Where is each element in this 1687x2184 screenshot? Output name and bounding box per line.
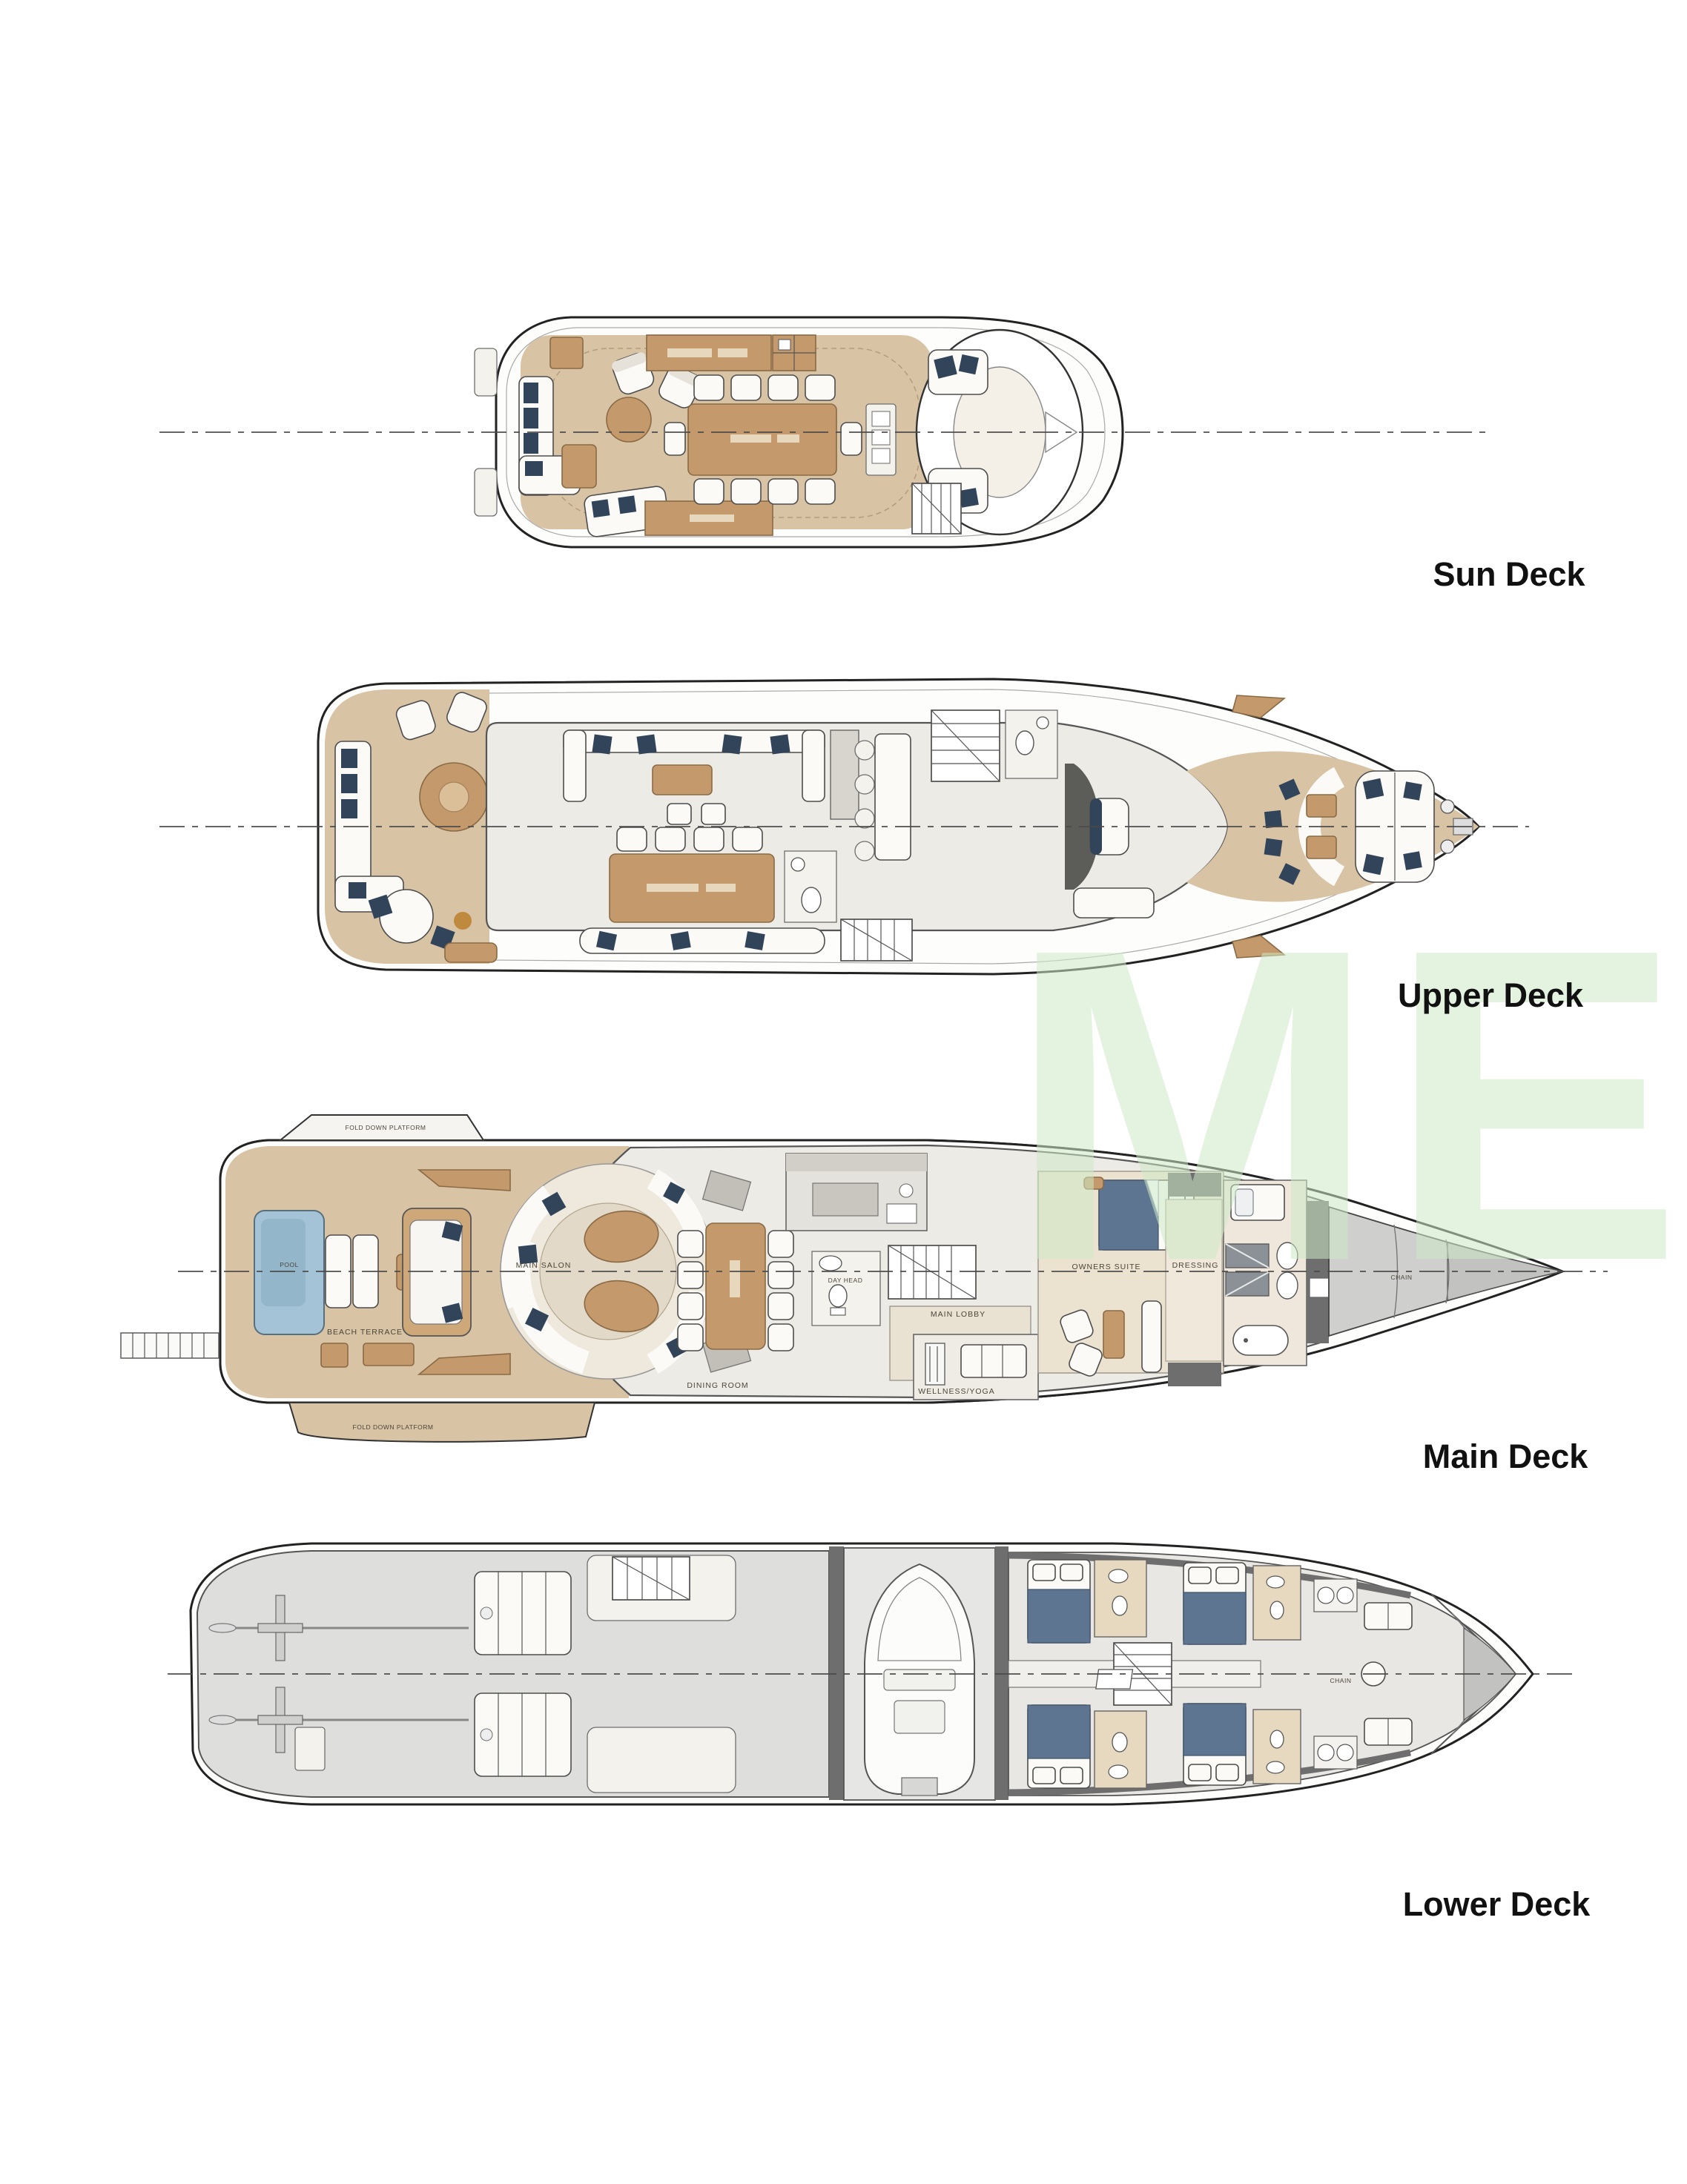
side-table bbox=[562, 445, 596, 488]
guest-cabin-bed bbox=[1028, 1705, 1090, 1788]
stbd-wing bbox=[475, 469, 497, 516]
chain-box bbox=[1096, 1670, 1133, 1689]
label-beach-terrace: BEACH TERRACE bbox=[327, 1328, 403, 1337]
port-wing bbox=[475, 348, 497, 396]
sun-deck-stairs bbox=[912, 483, 961, 534]
yacht-deck-plans-page: ME POOL BEACH TERRACE MAIN SALON DINING … bbox=[0, 0, 1687, 2184]
label-chain-main: CHAIN bbox=[1391, 1274, 1413, 1281]
galley bbox=[786, 1154, 927, 1231]
title-main-deck: Main Deck bbox=[1423, 1437, 1589, 1475]
day-head bbox=[812, 1251, 880, 1326]
label-dining-room: DINING ROOM bbox=[687, 1381, 748, 1390]
wardrobe bbox=[1168, 1363, 1221, 1386]
cabin-bathroom bbox=[1095, 1711, 1146, 1788]
label-dressing: DRESSING bbox=[1172, 1261, 1219, 1270]
stool bbox=[667, 804, 691, 824]
tender-boat bbox=[865, 1564, 974, 1796]
title-upper-deck: Upper Deck bbox=[1398, 976, 1584, 1014]
cabin-bathroom bbox=[1253, 1566, 1301, 1640]
cabin-bathroom bbox=[1095, 1560, 1146, 1637]
tv-cabinet bbox=[831, 730, 859, 819]
pool bbox=[254, 1211, 324, 1334]
sunpad-top bbox=[928, 350, 988, 394]
side-table bbox=[550, 337, 583, 368]
upper-stairs-fwd bbox=[931, 710, 1000, 781]
upper-wc bbox=[1006, 710, 1057, 778]
title-lower-deck: Lower Deck bbox=[1403, 1885, 1591, 1923]
bar-counter-top bbox=[647, 335, 816, 371]
deco bbox=[454, 912, 472, 930]
stool bbox=[701, 804, 725, 824]
garage-stairs bbox=[613, 1557, 690, 1600]
label-owners-suite: OWNERS SUITE bbox=[1072, 1263, 1140, 1271]
guest-cabin-bed bbox=[1183, 1563, 1246, 1644]
round-table bbox=[607, 397, 651, 442]
label-main-lobby: MAIN LOBBY bbox=[931, 1310, 986, 1319]
label-fold-down-platform-top: FOLD DOWN PLATFORM bbox=[346, 1124, 426, 1131]
watermark-text: ME bbox=[1007, 857, 1687, 1354]
console bbox=[866, 404, 896, 475]
round-table bbox=[380, 890, 433, 943]
engine bbox=[475, 1693, 571, 1776]
upper-day-head bbox=[785, 851, 836, 922]
sun-deck-dining-table bbox=[688, 404, 836, 475]
deck-box bbox=[363, 1343, 414, 1366]
deck-box bbox=[321, 1343, 348, 1367]
upper-stairs-aft bbox=[841, 919, 912, 961]
title-sun-deck: Sun Deck bbox=[1433, 555, 1585, 593]
main-dining bbox=[678, 1223, 793, 1351]
label-chain-lower: CHAIN bbox=[1330, 1677, 1352, 1684]
deck-plans-canvas: ME POOL BEACH TERRACE MAIN SALON DINING … bbox=[0, 0, 1687, 2184]
locker bbox=[295, 1727, 325, 1770]
coffee-table bbox=[653, 765, 712, 795]
guest-cabin-bed bbox=[1028, 1560, 1090, 1643]
label-main-salon: MAIN SALON bbox=[516, 1261, 572, 1270]
label-day-head: DAY HEAD bbox=[828, 1277, 863, 1284]
bar-counter-bottom bbox=[645, 501, 773, 535]
stowed-platform bbox=[587, 1727, 736, 1793]
guest-cabin-bed bbox=[1183, 1704, 1246, 1785]
aft-bench bbox=[445, 943, 497, 962]
cabin-bathroom bbox=[1253, 1710, 1301, 1784]
label-wellness-yoga: WELLNESS/YOGA bbox=[918, 1387, 994, 1396]
label-pool: POOL bbox=[280, 1261, 299, 1268]
label-fold-down-platform-bottom: FOLD DOWN PLATFORM bbox=[353, 1423, 434, 1431]
engine bbox=[475, 1572, 571, 1655]
fold-down-platform-bottom bbox=[289, 1403, 595, 1442]
passerelle bbox=[121, 1333, 219, 1358]
